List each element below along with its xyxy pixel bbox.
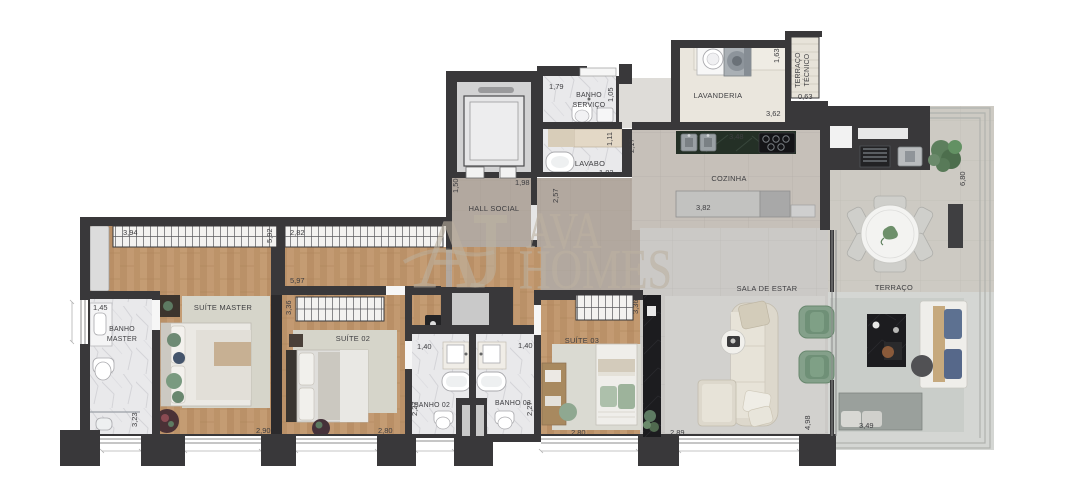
svg-text:2,27: 2,27 xyxy=(525,401,534,416)
svg-text:BANHO 02: BANHO 02 xyxy=(414,402,450,409)
svg-text:LAVABO: LAVABO xyxy=(575,159,605,168)
svg-text:2,89: 2,89 xyxy=(670,428,685,437)
svg-text:2,57: 2,57 xyxy=(551,188,560,203)
svg-text:6,80: 6,80 xyxy=(958,171,967,186)
svg-text:LAVANDERIA: LAVANDERIA xyxy=(694,91,743,100)
svg-text:2,80: 2,80 xyxy=(571,428,586,437)
svg-text:4,98: 4,98 xyxy=(803,415,812,430)
svg-text:3,82: 3,82 xyxy=(696,203,711,212)
svg-text:3,62: 3,62 xyxy=(766,109,781,118)
svg-text:HOMES: HOMES xyxy=(519,238,672,300)
svg-text:2,90: 2,90 xyxy=(256,426,271,435)
svg-text:3,23: 3,23 xyxy=(130,412,139,427)
svg-text:1,40: 1,40 xyxy=(417,342,432,351)
svg-text:3,48: 3,48 xyxy=(729,132,744,141)
svg-text:1,11: 1,11 xyxy=(605,132,614,146)
svg-text:2,17: 2,17 xyxy=(627,138,636,153)
svg-text:2,82: 2,82 xyxy=(290,228,305,237)
svg-text:5,97: 5,97 xyxy=(290,276,305,285)
svg-text:SALA DE ESTAR: SALA DE ESTAR xyxy=(737,284,798,293)
svg-text:1,50: 1,50 xyxy=(451,178,460,193)
svg-text:TÉCNICO: TÉCNICO xyxy=(802,53,811,86)
svg-text:TERRAÇO: TERRAÇO xyxy=(875,283,913,292)
svg-text:3,49: 3,49 xyxy=(859,421,874,430)
svg-text:COZINHA: COZINHA xyxy=(711,174,746,183)
svg-text:1,05: 1,05 xyxy=(606,87,615,102)
svg-text:3,36: 3,36 xyxy=(631,299,640,314)
svg-text:2,80: 2,80 xyxy=(378,426,393,435)
svg-text:1,45: 1,45 xyxy=(93,303,108,312)
svg-text:1,63: 1,63 xyxy=(772,48,781,63)
svg-text:1,98: 1,98 xyxy=(515,178,530,187)
svg-text:0,63: 0,63 xyxy=(798,92,813,101)
svg-text:3,36: 3,36 xyxy=(284,300,293,315)
svg-text:MASTER: MASTER xyxy=(107,336,137,343)
svg-text:TERRAÇO: TERRAÇO xyxy=(795,52,802,88)
svg-text:1,82: 1,82 xyxy=(599,168,614,177)
svg-text:BANHO: BANHO xyxy=(109,326,135,333)
svg-text:5,92: 5,92 xyxy=(265,228,274,243)
svg-text:SUÍTE 02: SUÍTE 02 xyxy=(336,334,370,343)
svg-text:SERVIÇO: SERVIÇO xyxy=(573,102,606,109)
svg-text:SUÍTE MASTER: SUÍTE MASTER xyxy=(194,303,252,312)
svg-text:BANHO: BANHO xyxy=(576,92,602,99)
svg-text:1,40: 1,40 xyxy=(518,341,533,350)
svg-text:SUÍTE 03: SUÍTE 03 xyxy=(565,336,599,345)
svg-text:2,27: 2,27 xyxy=(410,401,419,416)
svg-text:3,94: 3,94 xyxy=(123,228,138,237)
svg-text:1,79: 1,79 xyxy=(549,82,564,91)
